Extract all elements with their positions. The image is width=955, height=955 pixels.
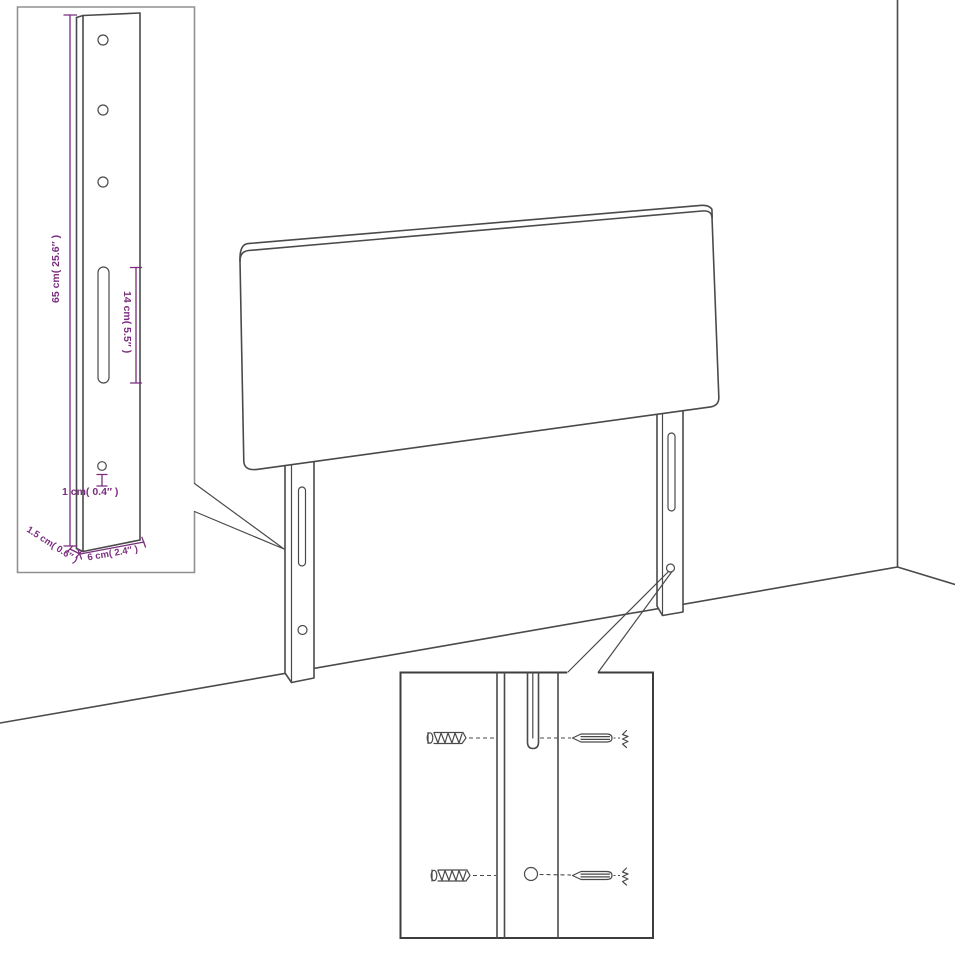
left-leg-slot [299,487,306,566]
wall-plug-icon [573,734,613,742]
leg-hole-magnified [525,868,538,881]
headboard-dimension-diagram: 65 cm( 25.6″ ) 14 cm( 5.5″ ) 1 cm( 0.4″ … [0,0,955,955]
leg-small-hole [98,462,107,471]
leg-hole-third [98,177,108,187]
headboard [240,205,719,469]
leg-hole-top [98,35,108,45]
wall-plug-icon [573,872,613,880]
callout-lines-left-leg [195,484,285,550]
right-leg-slot [668,433,675,511]
diagram-canvas: 65 cm( 25.6″ ) 14 cm( 5.5″ ) 1 cm( 0.4″ … [0,0,955,955]
label-leg-height: 65 cm( 25.6″ ) [50,235,62,303]
leg-slot [98,267,109,383]
leg-hole-middle [98,105,108,115]
right-leg-hole [667,564,675,572]
label-hole-offset: 1 cm( 0.4″ ) [62,486,118,498]
right-mounting-leg [657,404,683,616]
left-mounting-leg [285,449,314,683]
headboard-front-face [240,211,719,470]
mounting-detail-inset [401,673,654,939]
label-slot-length: 14 cm( 5.5″ ) [121,291,133,353]
left-leg-hole [298,626,307,635]
